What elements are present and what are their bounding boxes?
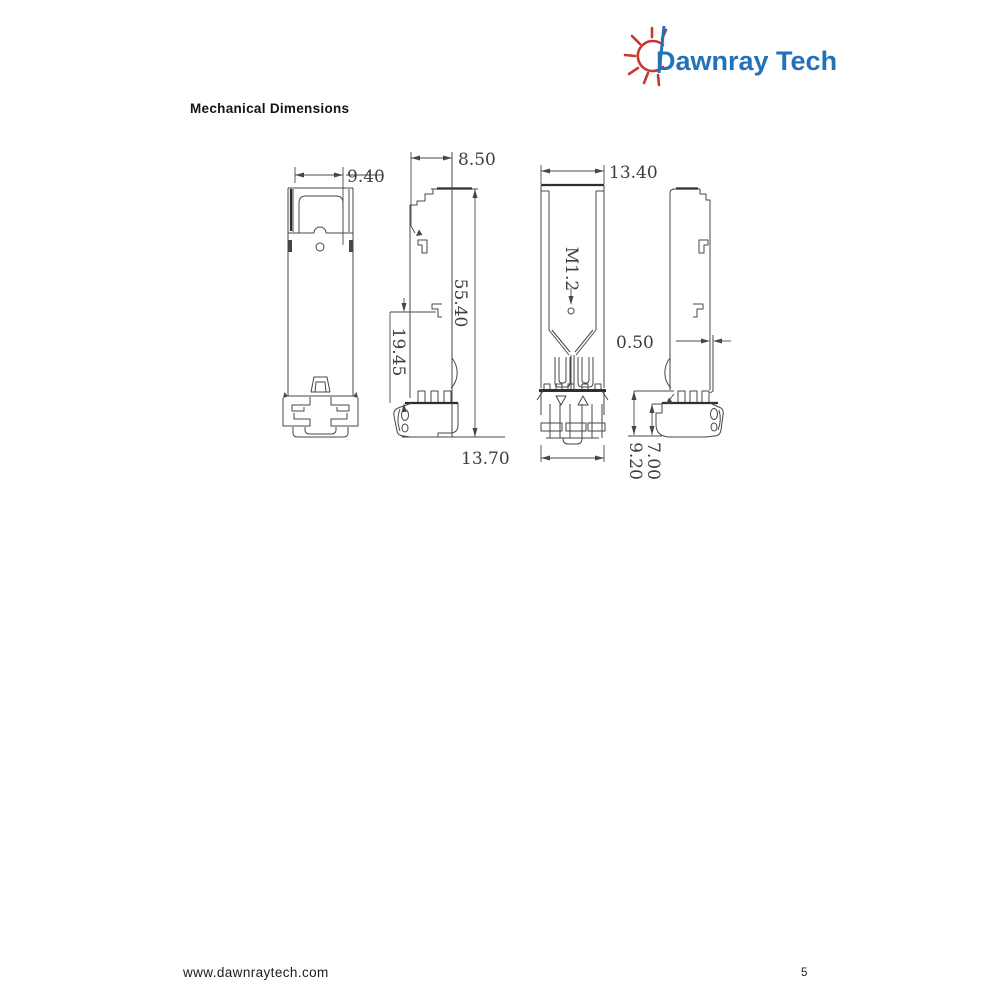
dim-0-50: 0.50	[616, 333, 654, 353]
dim-19-45: 19.45	[388, 328, 408, 377]
screw-callout-m1-2: M1.2	[561, 247, 581, 291]
dim-13-40: 13.40	[609, 163, 658, 183]
dim-9-20: 9.20	[625, 442, 645, 480]
dim-9-40: 9.40	[347, 167, 385, 187]
dim-8-50: 8.50	[458, 150, 496, 170]
top-view-drawing: 9.40	[283, 167, 385, 437]
side-view-right-drawing: 0.50 9.20 7.00	[616, 189, 731, 480]
side-view-left-drawing: 8.50 55.40 19.45 13.70	[388, 150, 510, 469]
document-page: Dawnray Tech Mechanical Dimensions	[0, 0, 1000, 1000]
dim-13-70: 13.70	[461, 449, 510, 469]
footer-website: www.dawnraytech.com	[183, 965, 329, 980]
logo: Dawnray Tech	[612, 13, 852, 93]
page-number: 5	[801, 967, 807, 979]
bottom-view-drawing: M1.2 13.40	[537, 163, 658, 462]
dim-55-40: 55.40	[450, 279, 470, 328]
page-title: Mechanical Dimensions	[190, 101, 349, 116]
mechanical-drawing: 9.40	[270, 140, 750, 495]
logo-text: Dawnray Tech	[656, 46, 837, 76]
dim-7-00: 7.00	[643, 442, 663, 480]
